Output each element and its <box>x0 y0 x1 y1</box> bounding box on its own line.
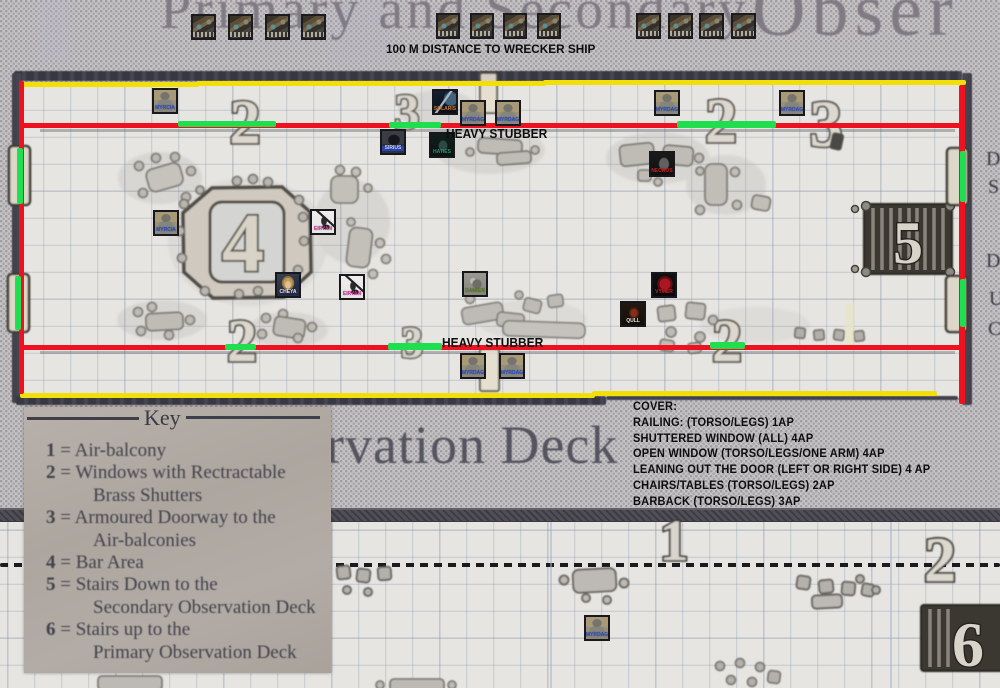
svg-text:1: 1 <box>660 508 689 573</box>
svg-text:2: 2 <box>924 524 956 595</box>
svg-text:6: 6 <box>952 609 984 680</box>
